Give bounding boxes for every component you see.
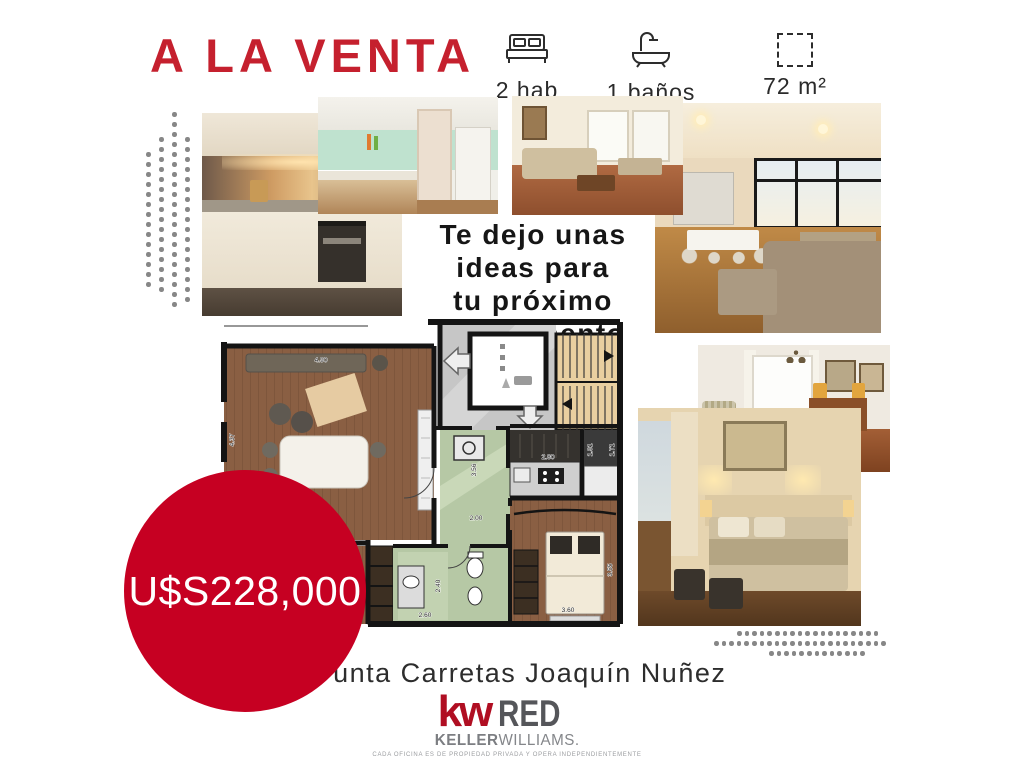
dots-decoration-left (146, 112, 196, 324)
bed-icon (503, 30, 551, 71)
photo-living-classic (512, 96, 683, 215)
page-title: A LA VENTA (150, 28, 475, 83)
feature-bedrooms: 2 hab (472, 30, 582, 104)
kw-logo: kw RED KELLERWILLIAMS. CADA OFICINA ES D… (0, 690, 1014, 758)
dim-437: 4.37 (229, 433, 236, 446)
logo-disclaimer: CADA OFICINA ES DE PROPIEDAD PRIVADA Y O… (372, 752, 641, 758)
dim-356: 3.56 (471, 463, 478, 476)
dim-191: 1.91 (587, 443, 594, 456)
dim-240: 2.40 (435, 579, 442, 592)
feature-area: 72 m² (740, 30, 850, 100)
dim-171: 1.71 (609, 443, 616, 456)
dim-280: 2.80 (542, 454, 555, 461)
price-amount: U$S228,000 (129, 568, 362, 615)
keller-williams-line: KELLERWILLIAMS. (435, 732, 580, 750)
photo-living-modern (655, 103, 881, 333)
flyer-canvas: A LA VENTA 2 hab 1 baños 72 m² (0, 0, 1024, 768)
dim-260: 2.60 (419, 612, 432, 619)
bath-icon (628, 30, 674, 73)
dim-200: 2.00 (470, 515, 483, 522)
kw-logo-wordmark: kw RED (438, 690, 577, 734)
price-badge: U$S228,000 (124, 470, 366, 712)
kw-logo-red: RED (498, 695, 561, 732)
dim-360: 3.60 (562, 607, 575, 614)
dim-355: 3.55 (607, 563, 614, 576)
feature-bathrooms: 1 baños (596, 30, 706, 106)
photo-kitchen-secondary (318, 97, 498, 214)
photo-bedroom (638, 408, 861, 626)
area-label: 72 m² (763, 73, 827, 100)
kw-logo-kw: kw (438, 690, 491, 734)
dim-490: 4.90 (315, 357, 328, 364)
area-icon (777, 33, 813, 67)
